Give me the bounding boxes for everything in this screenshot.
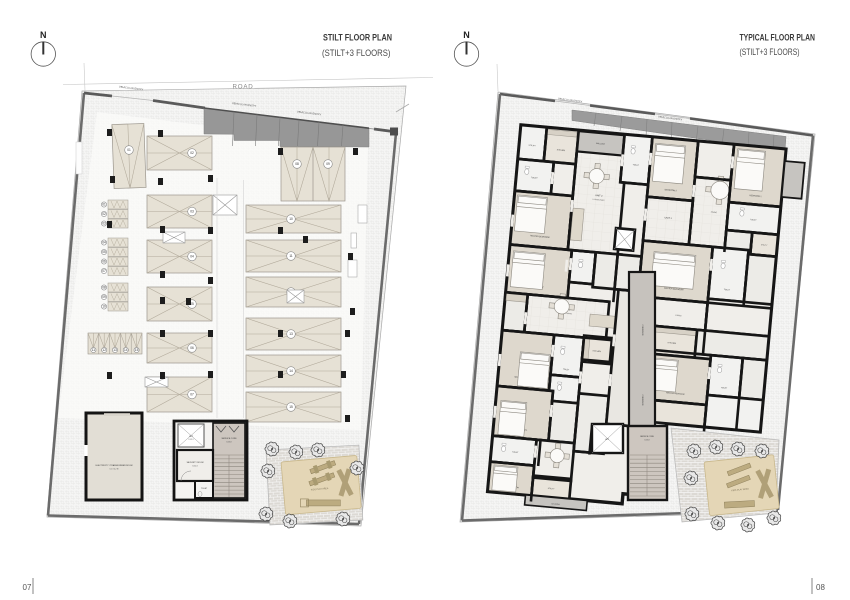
svg-text:06: 06 bbox=[190, 346, 194, 350]
svg-text:STILT FLOOR PLAN: STILT FLOOR PLAN bbox=[323, 33, 392, 44]
svg-text:07: 07 bbox=[102, 269, 106, 273]
svg-text:SERVICE CORE: SERVICE CORE bbox=[221, 438, 237, 440]
svg-text:SERVICE CORE: SERVICE CORE bbox=[640, 436, 654, 438]
svg-text:08: 08 bbox=[295, 162, 299, 166]
svg-text:13: 13 bbox=[113, 348, 117, 352]
svg-text:ROAD: ROAD bbox=[232, 84, 253, 91]
svg-text:09: 09 bbox=[326, 162, 330, 166]
svg-text:09: 09 bbox=[102, 295, 106, 299]
svg-text:ELECTRICITY / TRANSFORMER ROOM: ELECTRICITY / TRANSFORMER ROOM bbox=[96, 464, 133, 467]
svg-text:02: 02 bbox=[102, 212, 106, 216]
svg-text:14: 14 bbox=[124, 348, 128, 352]
svg-text:12: 12 bbox=[102, 348, 106, 352]
svg-text:02: 02 bbox=[190, 151, 194, 155]
svg-text:08: 08 bbox=[816, 583, 825, 592]
svg-text:N: N bbox=[40, 30, 47, 40]
svg-text:07: 07 bbox=[23, 583, 32, 592]
svg-text:03: 03 bbox=[102, 222, 106, 226]
svg-text:TYPICAL FLOOR PLAN: TYPICAL FLOOR PLAN bbox=[740, 33, 816, 44]
svg-text:01: 01 bbox=[102, 203, 106, 207]
svg-text:13: 13 bbox=[289, 332, 293, 336]
svg-text:04: 04 bbox=[190, 255, 194, 259]
svg-text:3.0X6.8: 3.0X6.8 bbox=[644, 440, 649, 442]
svg-text:CORRIDOR: CORRIDOR bbox=[641, 325, 643, 336]
svg-text:07: 07 bbox=[190, 393, 194, 397]
svg-text:CORRIDOR: CORRIDOR bbox=[641, 395, 643, 406]
svg-text:2.0X1.8: 2.0X1.8 bbox=[188, 439, 193, 441]
svg-text:08: 08 bbox=[102, 286, 106, 290]
svg-text:15: 15 bbox=[289, 405, 293, 409]
svg-text:SECURITY ROOM: SECURITY ROOM bbox=[187, 462, 204, 464]
svg-text:(STILT+3 FLOORS): (STILT+3 FLOORS) bbox=[322, 48, 391, 59]
svg-text:N: N bbox=[463, 30, 470, 40]
svg-text:04: 04 bbox=[102, 241, 106, 245]
svg-text:10: 10 bbox=[289, 217, 293, 221]
svg-text:TOILET: TOILET bbox=[201, 488, 208, 490]
svg-text:06: 06 bbox=[102, 260, 106, 264]
svg-text:(STILT+3 FLOORS): (STILT+3 FLOORS) bbox=[740, 47, 800, 58]
svg-text:6.1 X 4.2 M: 6.1 X 4.2 M bbox=[110, 469, 119, 471]
svg-text:01: 01 bbox=[127, 148, 131, 152]
svg-text:10: 10 bbox=[102, 305, 106, 309]
svg-text:11: 11 bbox=[289, 254, 293, 258]
svg-text:14: 14 bbox=[289, 369, 293, 373]
svg-text:03: 03 bbox=[190, 210, 194, 214]
svg-text:3.0X6.8: 3.0X6.8 bbox=[226, 442, 231, 444]
svg-text:15: 15 bbox=[135, 348, 139, 352]
svg-text:05: 05 bbox=[102, 250, 106, 254]
svg-text:3.0X2.4: 3.0X2.4 bbox=[192, 466, 197, 468]
svg-text:11: 11 bbox=[92, 348, 96, 352]
